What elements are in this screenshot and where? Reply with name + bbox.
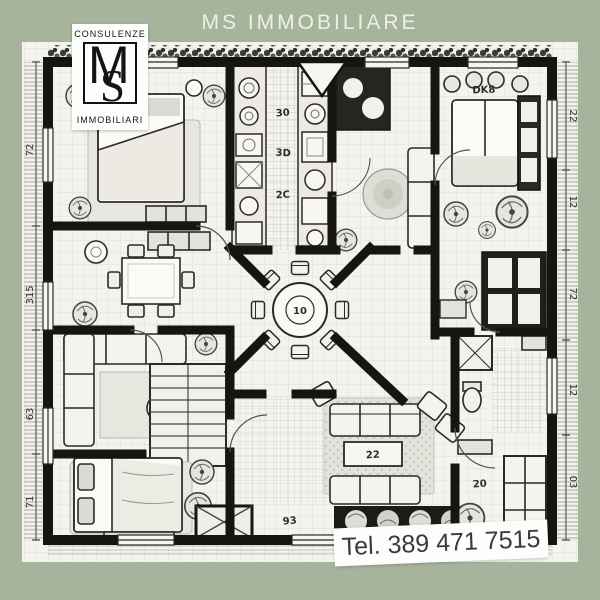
bed-topright (452, 100, 518, 186)
logo-badge: CONSULENZE M S IMMOBILIARI (72, 24, 148, 130)
dim-right-4: 12 (567, 384, 578, 397)
sofa-bottom (330, 476, 420, 504)
dim-left-1: 72 (25, 144, 36, 157)
coffee-table-label: 22 (366, 450, 381, 462)
dim-right-5: 03 (567, 476, 578, 489)
flyer: 30 3D 2C DK8 10 22 20 93 72 315 63 71 22… (0, 0, 600, 600)
stairs (150, 364, 226, 466)
logo-monogram-frame: M S (83, 42, 137, 104)
plant-icon (444, 202, 468, 226)
bedroom-bottomleft (70, 458, 192, 539)
dim-right-3: 72 (567, 288, 578, 301)
toilet (463, 388, 481, 412)
bathroom-tiles (492, 350, 546, 432)
dresser (146, 206, 206, 222)
dining-table-rect (122, 258, 180, 304)
plant-icon (496, 196, 527, 227)
dim-left-2: 315 (25, 285, 36, 304)
wardrobe (482, 252, 546, 330)
plant-icon (203, 85, 225, 107)
plant-icon (190, 460, 214, 484)
dim-right-1: 22 (567, 110, 578, 123)
table-label: 10 (293, 306, 307, 317)
nightstand (186, 80, 202, 96)
dim-right-2: 12 (567, 196, 578, 209)
bathroom-label: 20 (472, 479, 487, 491)
room-label-kitchen-b: 3D (275, 148, 291, 160)
room-label-kitchen-c: 2C (275, 190, 290, 202)
plant-icon (195, 333, 217, 355)
room-label-kitchen-a: 30 (275, 108, 290, 120)
plant-icon (73, 302, 97, 326)
hall-tiles (232, 396, 328, 504)
logo-immobiliari: IMMOBILIARI (72, 115, 148, 125)
sofa-top (330, 404, 420, 436)
dim-left-3: 63 (25, 408, 36, 421)
plant-icon (479, 222, 496, 239)
plant-icon (69, 197, 91, 219)
vanity (522, 336, 546, 350)
entry-label: 93 (282, 515, 297, 527)
chest (440, 300, 466, 318)
dim-left-4: 71 (25, 496, 36, 509)
chaise (408, 148, 434, 248)
side-table (85, 241, 107, 263)
stove (336, 66, 390, 130)
logo-monogram-s: S (100, 60, 125, 112)
bed-bottomleft (74, 458, 182, 532)
room-label-bedroom: DK8 (472, 85, 495, 97)
entry-tile (196, 506, 252, 538)
headboard-shelf (518, 96, 540, 190)
